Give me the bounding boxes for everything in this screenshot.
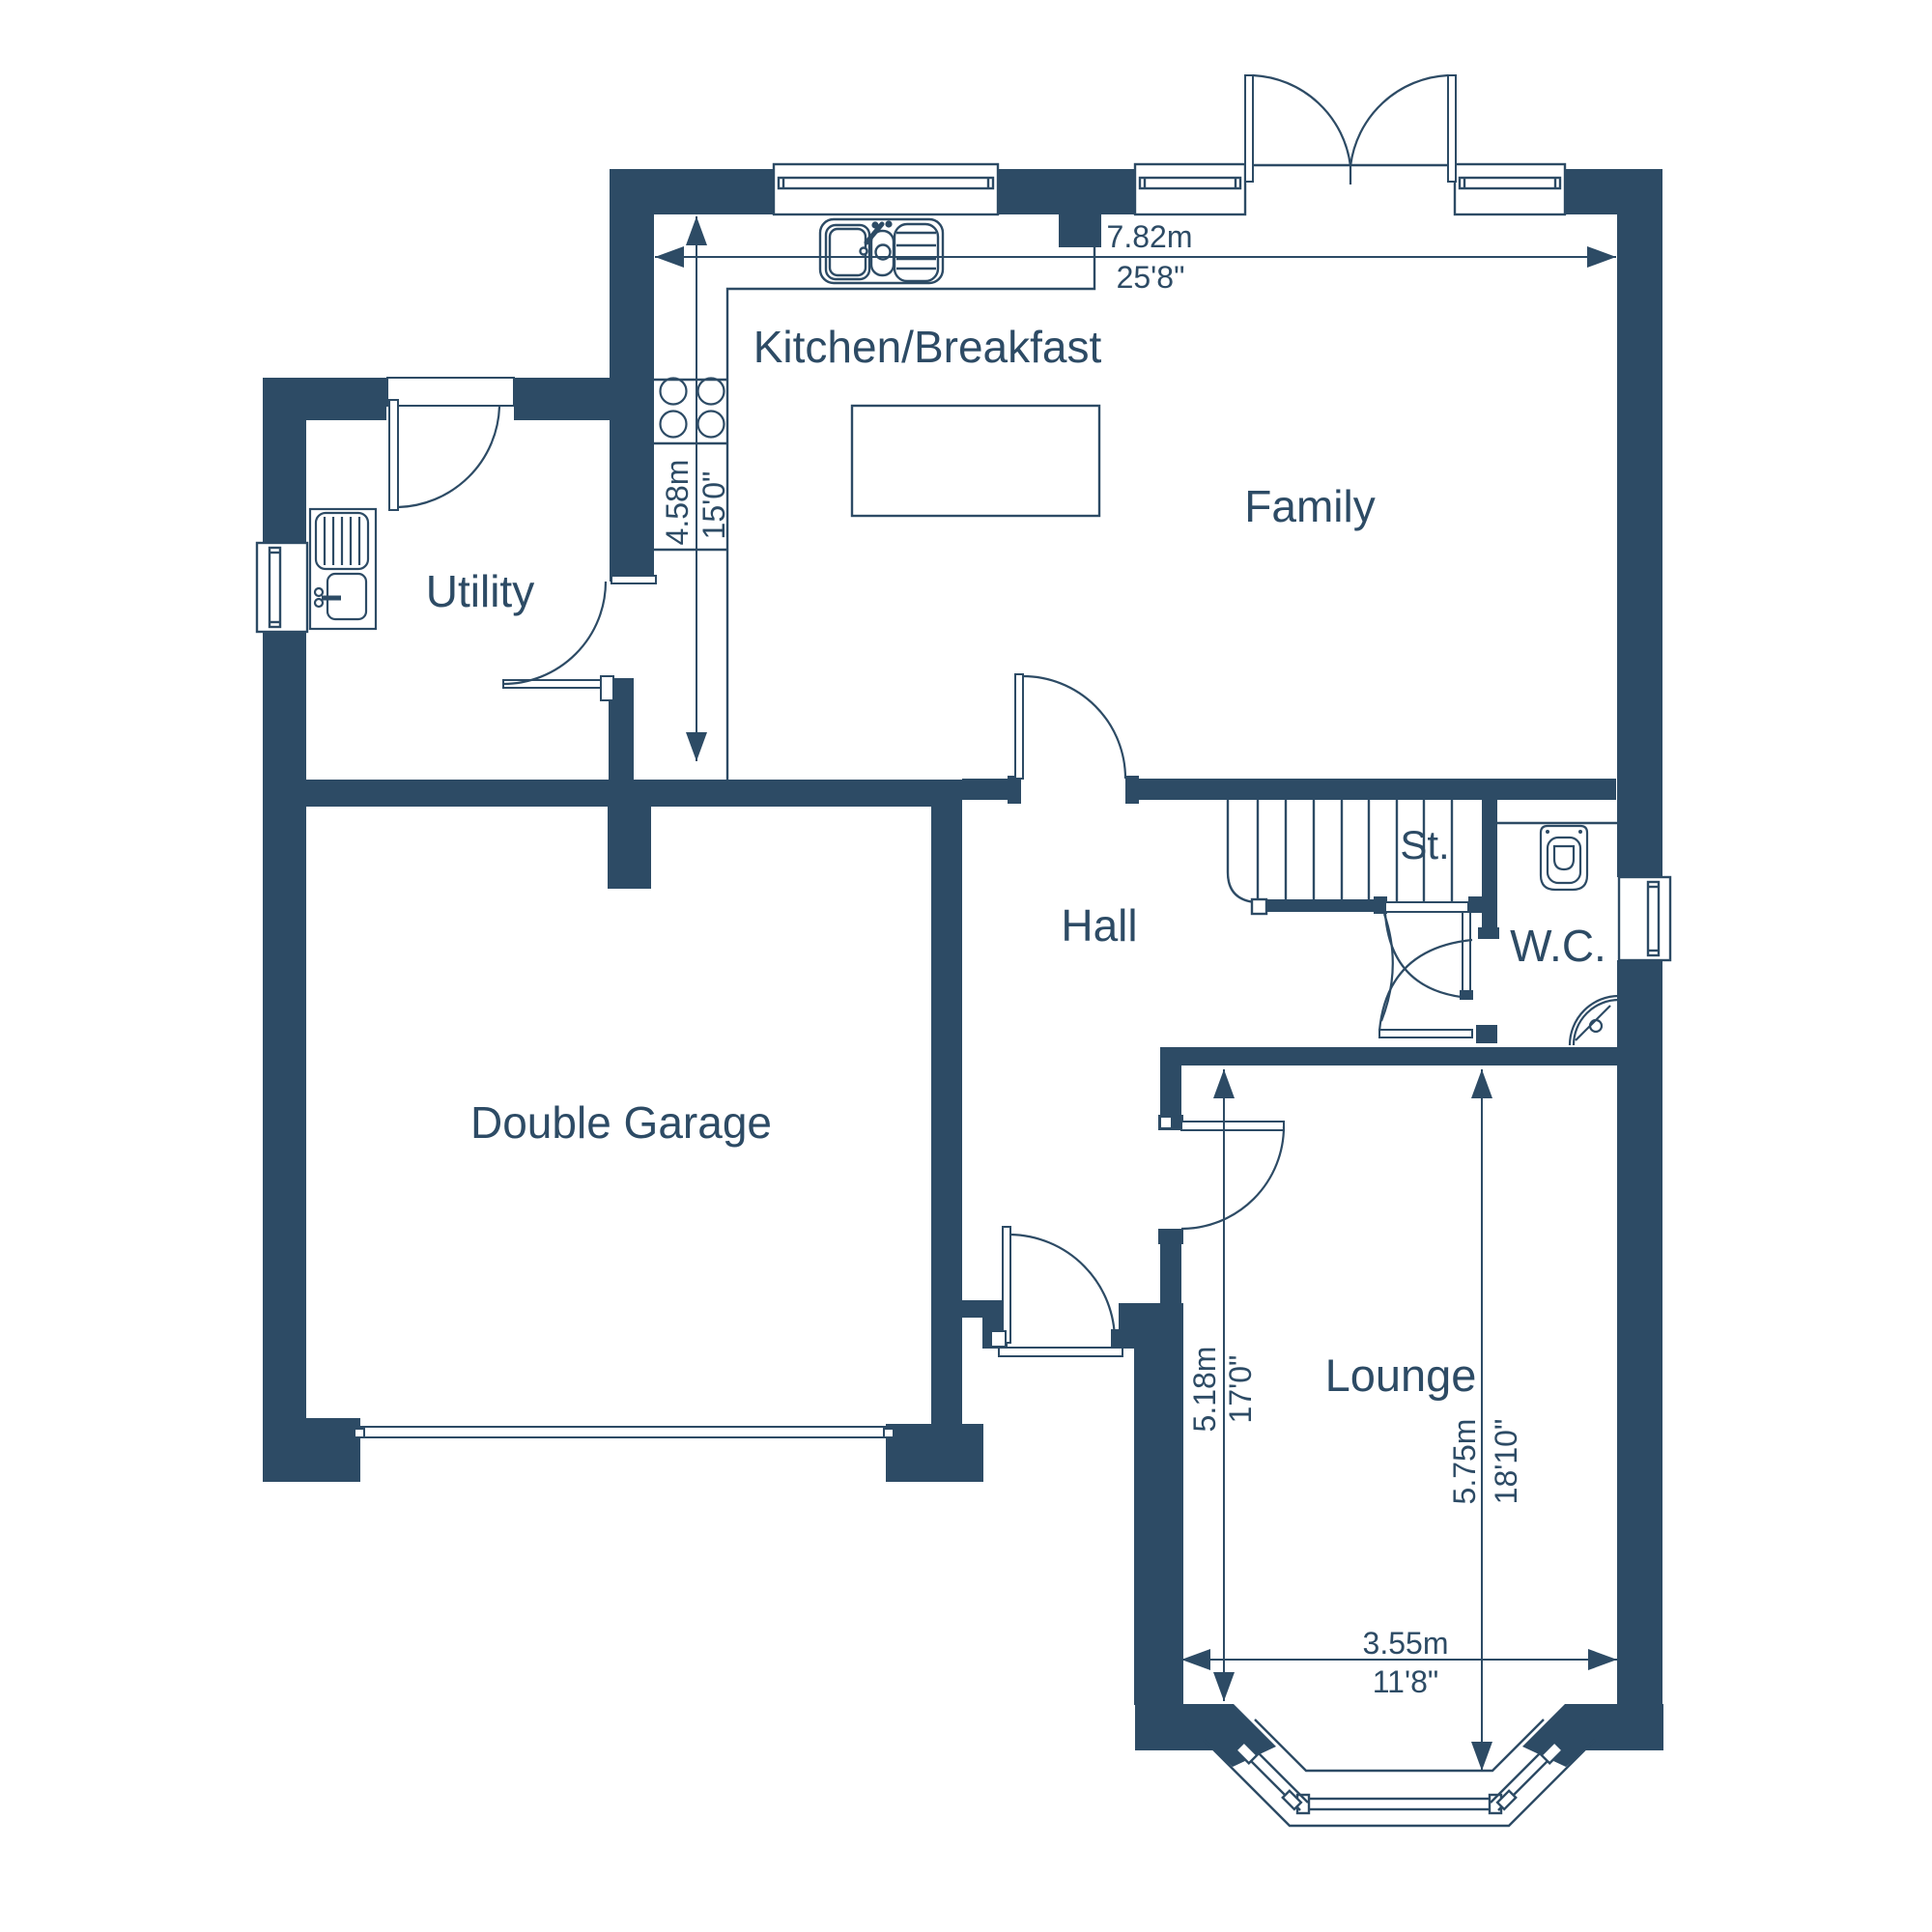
svg-text:3.55m: 3.55m	[1363, 1626, 1449, 1661]
svg-text:25'8": 25'8"	[1117, 260, 1185, 295]
svg-text:Lounge: Lounge	[1325, 1350, 1477, 1401]
svg-text:4.58m: 4.58m	[660, 460, 695, 546]
svg-text:18'10": 18'10"	[1489, 1419, 1523, 1505]
svg-text:17'0": 17'0"	[1223, 1355, 1258, 1424]
svg-text:St.: St.	[1400, 822, 1449, 867]
svg-text:7.82m: 7.82m	[1107, 219, 1193, 254]
svg-text:Hall: Hall	[1061, 900, 1137, 951]
svg-text:Double Garage: Double Garage	[470, 1097, 772, 1148]
svg-text:Kitchen/Breakfast: Kitchen/Breakfast	[753, 322, 1102, 372]
svg-text:Family: Family	[1244, 481, 1375, 531]
svg-text:Utility: Utility	[426, 566, 534, 616]
svg-text:5.75m: 5.75m	[1447, 1419, 1482, 1505]
svg-text:11'8": 11'8"	[1373, 1664, 1438, 1699]
svg-text:15'0": 15'0"	[696, 471, 731, 540]
svg-text:W.C.: W.C.	[1510, 921, 1606, 971]
svg-text:5.18m: 5.18m	[1187, 1347, 1222, 1433]
